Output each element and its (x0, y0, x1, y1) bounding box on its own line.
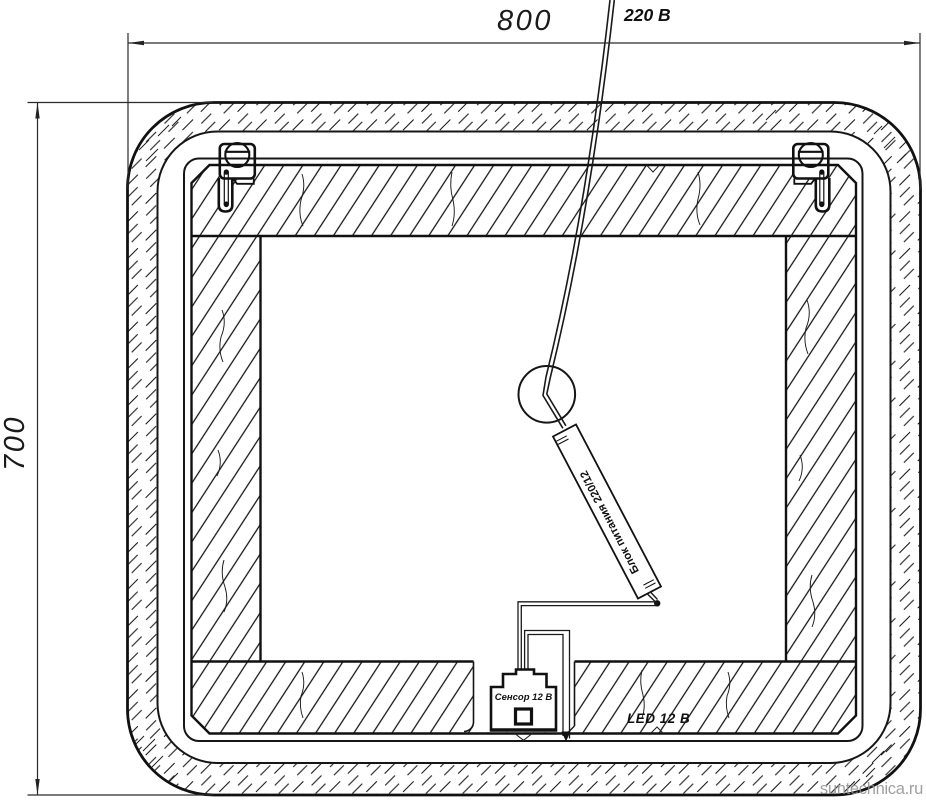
svg-text:700: 700 (0, 415, 31, 471)
svg-text:LED 12 В: LED 12 В (627, 711, 690, 726)
svg-text:Сенсор 12 В: Сенсор 12 В (495, 692, 553, 703)
svg-text:220 В: 220 В (623, 5, 671, 25)
svg-text:suntechnica.ru: suntechnica.ru (820, 780, 923, 798)
svg-text:800: 800 (497, 5, 553, 37)
